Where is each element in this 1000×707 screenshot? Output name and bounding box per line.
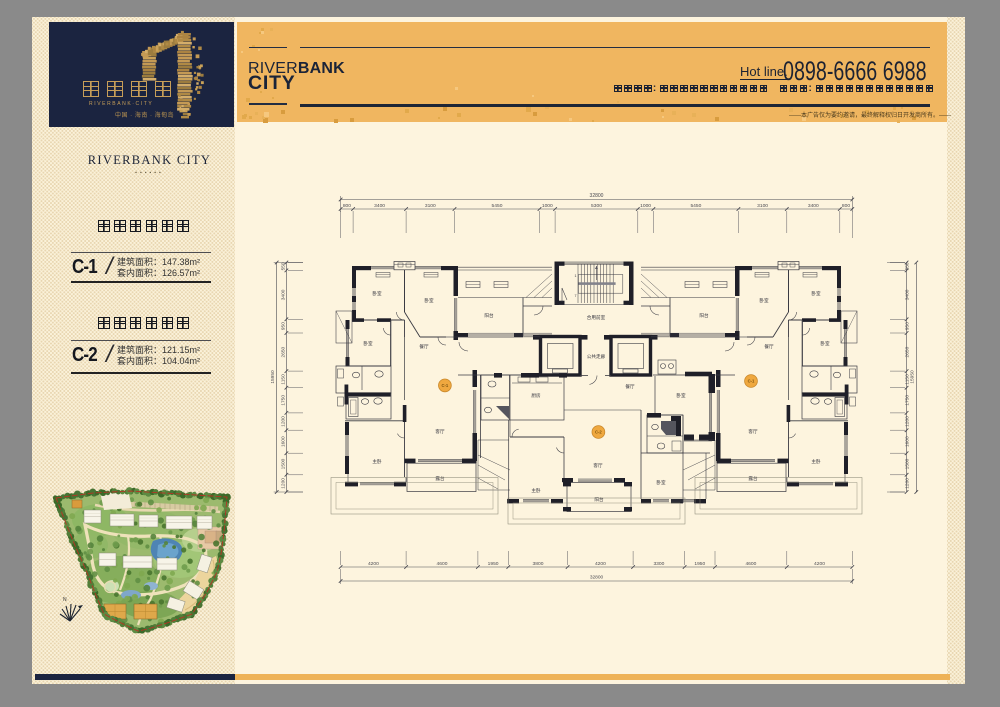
svg-text:3400: 3400	[281, 289, 287, 300]
svg-text:阳台: 阳台	[699, 312, 709, 319]
svg-text:950: 950	[281, 322, 287, 330]
svg-text:800: 800	[842, 203, 850, 209]
svg-text:1200: 1200	[281, 478, 287, 489]
svg-text:公共走廊: 公共走廊	[587, 353, 606, 360]
svg-text:1200: 1200	[281, 416, 287, 427]
svg-text:1200: 1200	[904, 478, 910, 489]
svg-text:4600: 4600	[745, 561, 756, 567]
svg-text:客厅: 客厅	[435, 428, 445, 435]
svg-text:1750: 1750	[281, 395, 287, 406]
svg-text:厨房: 厨房	[531, 392, 541, 399]
svg-text:1500: 1500	[904, 458, 910, 469]
svg-text:3300: 3300	[653, 561, 664, 567]
svg-text:1150: 1150	[904, 374, 910, 385]
svg-text:3100: 3100	[757, 203, 768, 209]
svg-text:2650: 2650	[904, 346, 910, 357]
svg-text:餐厅: 餐厅	[419, 343, 429, 350]
svg-text:卧室: 卧室	[372, 290, 382, 297]
svg-text:5300: 5300	[591, 203, 602, 209]
svg-text:1600: 1600	[281, 436, 287, 447]
svg-text:5450: 5450	[492, 203, 503, 209]
svg-text:卧室: 卧室	[759, 297, 769, 304]
svg-text:950: 950	[904, 322, 910, 330]
svg-text:主卧: 主卧	[531, 487, 541, 494]
svg-text:3800: 3800	[533, 561, 544, 567]
svg-text:5450: 5450	[690, 203, 701, 209]
svg-text:卧室: 卧室	[656, 479, 666, 486]
svg-text:1950: 1950	[488, 561, 499, 567]
svg-text:餐厅: 餐厅	[764, 343, 774, 350]
svg-text:2650: 2650	[281, 346, 287, 357]
svg-text:3100: 3100	[425, 203, 436, 209]
svg-text:C-1: C-1	[442, 383, 449, 388]
svg-text:3400: 3400	[808, 203, 819, 209]
svg-text:露台: 露台	[748, 475, 758, 482]
svg-text:1750: 1750	[904, 395, 910, 406]
svg-text:3400: 3400	[904, 289, 910, 300]
svg-text:客厅: 客厅	[748, 428, 758, 435]
svg-text:1150: 1150	[281, 374, 287, 385]
svg-text:卧室: 卧室	[811, 290, 821, 297]
svg-text:800: 800	[343, 203, 351, 209]
svg-text:1200: 1200	[904, 416, 910, 427]
svg-text:4600: 4600	[437, 561, 448, 567]
svg-text:1000: 1000	[542, 203, 553, 209]
svg-text:32800: 32800	[590, 193, 604, 199]
svg-text:C-2: C-2	[595, 430, 602, 435]
svg-text:卧室: 卧室	[363, 340, 373, 347]
svg-text:15950: 15950	[270, 370, 276, 384]
svg-text:卧室: 卧室	[820, 340, 830, 347]
svg-text:客厅: 客厅	[593, 462, 603, 469]
svg-text:阳台: 阳台	[484, 312, 494, 319]
svg-text:4200: 4200	[595, 561, 606, 567]
svg-text:1000: 1000	[640, 203, 651, 209]
svg-text:卧室: 卧室	[676, 392, 686, 399]
svg-text:合用前室: 合用前室	[587, 314, 606, 321]
svg-text:4200: 4200	[814, 561, 825, 567]
svg-text:7: 7	[575, 294, 577, 298]
svg-text:1950: 1950	[694, 561, 705, 567]
svg-text:主卧: 主卧	[811, 458, 821, 465]
svg-text:1600: 1600	[904, 436, 910, 447]
svg-text:1: 1	[575, 274, 577, 278]
svg-text:C-1: C-1	[748, 379, 755, 384]
svg-text:卧室: 卧室	[424, 297, 434, 304]
svg-text:阳台: 阳台	[594, 496, 604, 503]
svg-text:N: N	[63, 597, 67, 603]
svg-text:550: 550	[904, 262, 910, 270]
svg-text:主卧: 主卧	[372, 458, 382, 465]
svg-text:550: 550	[281, 262, 287, 270]
svg-text:4200: 4200	[368, 561, 379, 567]
svg-text:露台: 露台	[435, 475, 445, 482]
svg-text:32800: 32800	[590, 575, 604, 581]
svg-text:3400: 3400	[374, 203, 385, 209]
svg-text:1500: 1500	[281, 458, 287, 469]
svg-text:餐厅: 餐厅	[625, 383, 635, 390]
